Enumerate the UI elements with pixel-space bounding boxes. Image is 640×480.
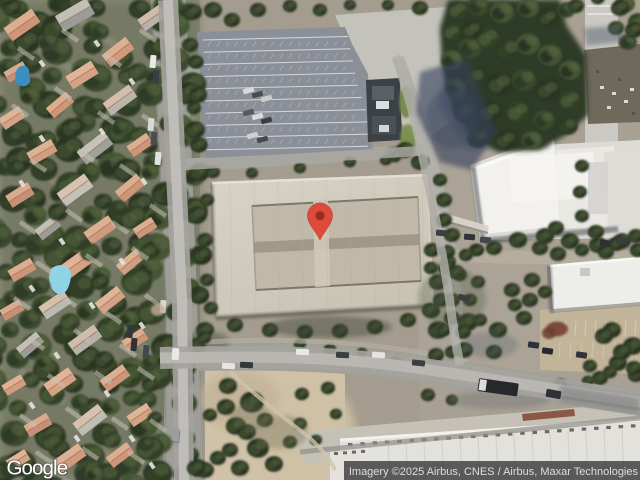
svg-text:Imagery ©2025 Airbus, CNES / A: Imagery ©2025 Airbus, CNES / Airbus, Max… — [349, 466, 639, 478]
svg-text:Google: Google — [7, 457, 68, 480]
